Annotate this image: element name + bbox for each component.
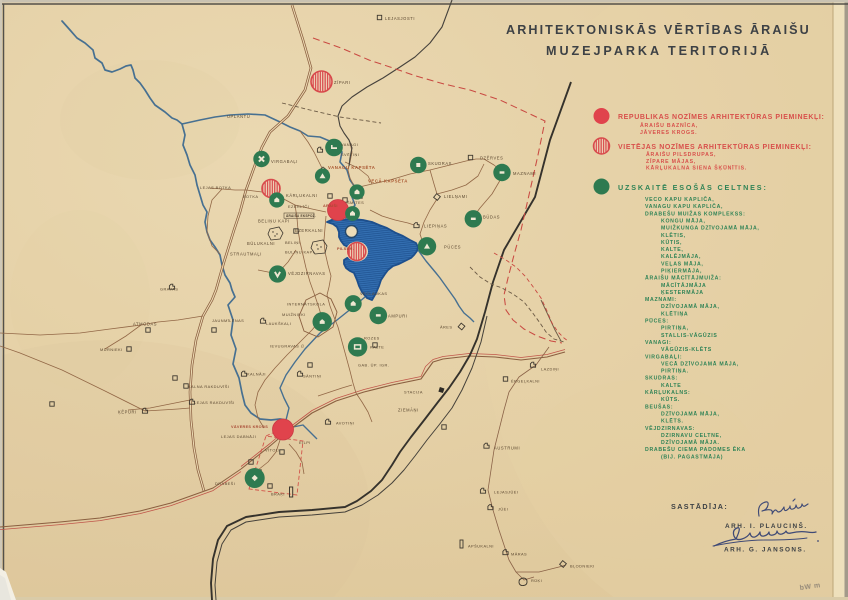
- svg-text:SASTĀDĪJA:: SASTĀDĪJA:: [671, 502, 728, 511]
- svg-text:BEUŠAS:: BEUŠAS:: [645, 402, 673, 410]
- svg-text:MĀCĪTĀJMĀJA: MĀCĪTĀJMĀJA: [661, 282, 706, 289]
- svg-text:VĒJDZIRNAVAS: VĒJDZIRNAVAS: [288, 271, 326, 276]
- svg-text:KĀRĻUKALNI: KĀRĻUKALNI: [286, 193, 317, 198]
- svg-text:BRAĶI: BRAĶI: [271, 492, 285, 497]
- svg-text:KALTE: KALTE: [661, 383, 681, 389]
- svg-text:ĀRAIŠU EKSPOZ.: ĀRAIŠU EKSPOZ.: [286, 213, 316, 218]
- svg-text:PIĶIERMĀJA,: PIĶIERMĀJA,: [661, 268, 702, 275]
- svg-text:ŠMITES: ŠMITES: [347, 200, 364, 205]
- svg-text:DZĪVOJAMĀ MĀJA,: DZĪVOJAMĀ MĀJA,: [661, 303, 720, 310]
- svg-text:KĀRĻUKALNA SIENA ŠĶŪNĪTIS.: KĀRĻUKALNA SIENA ŠĶŪNĪTIS.: [646, 164, 747, 172]
- svg-text:KALNĀJI: KALNĀJI: [247, 372, 266, 377]
- svg-text:ĀRAIŠU MĀCĪTĀJMUIŽA:: ĀRAIŠU MĀCĪTĀJMUIŽA:: [645, 274, 722, 282]
- svg-text:KALNA RAKDUVĪŠI: KALNA RAKDUVĪŠI: [188, 384, 229, 389]
- svg-text:VIETĒJAS NOZĪMES ARHITEKTŪRAS: VIETĒJAS NOZĪMES ARHITEKTŪRAS PIEMINEKĻI…: [618, 143, 812, 151]
- svg-text:MUIŽNIEKI: MUIŽNIEKI: [282, 312, 306, 317]
- svg-text:DZĒRVES: DZĒRVES: [480, 156, 503, 161]
- svg-text:KLĒTS.: KLĒTS.: [661, 418, 684, 425]
- svg-text:PŪCES:: PŪCES:: [645, 318, 669, 325]
- svg-text:UZSKAITĒ ESOŠĀS CELTNES:: UZSKAITĒ ESOŠĀS CELTNES:: [618, 183, 768, 192]
- svg-text:EZERKALNI: EZERKALNI: [295, 228, 323, 233]
- svg-text:VĀGŪZIS-KLĒTS: VĀGŪZIS-KLĒTS: [661, 346, 712, 353]
- svg-text:DRABEŠU CIEMA PADOMES ĒKA: DRABEŠU CIEMA PADOMES ĒKA: [645, 445, 746, 453]
- svg-text:EZERLĪČI: EZERLĪČI: [288, 204, 309, 209]
- svg-text:AUSTRUMI: AUSTRUMI: [494, 446, 520, 451]
- svg-text:KŪTIS,: KŪTIS,: [661, 239, 682, 246]
- svg-text:ARAIŠI: ARAIŠI: [323, 203, 338, 208]
- svg-text:BŪLUKALNI: BŪLUKALNI: [247, 241, 275, 246]
- svg-text:LEJAS RAKDUVĪŠI: LEJAS RAKDUVĪŠI: [194, 400, 235, 405]
- svg-text:GAB. ŪP. IGR.: GAB. ŪP. IGR.: [358, 363, 389, 368]
- svg-text:VĪTOLI: VĪTOLI: [265, 448, 280, 453]
- svg-text:ĀRES: ĀRES: [440, 325, 452, 330]
- svg-text:KALĒJMĀJA,: KALĒJMĀJA,: [661, 253, 701, 260]
- svg-text:ĶĒPURI: ĶĒPURI: [118, 410, 137, 415]
- svg-text:ZĪPARI: ZĪPARI: [334, 80, 351, 85]
- svg-text:ZĪPARE MĀJAS,: ZĪPARE MĀJAS,: [646, 158, 696, 165]
- svg-text:VEĻAS MĀJA,: VEĻAS MĀJA,: [661, 260, 704, 267]
- svg-text:SKUDRAS:: SKUDRAS:: [645, 376, 678, 382]
- svg-text:LEJASJŪĖI: LEJASJŪĖI: [494, 490, 518, 495]
- svg-text:BELIŅI: BELIŅI: [285, 240, 300, 245]
- svg-text:STRAUTMAĻI: STRAUTMAĻI: [230, 252, 262, 257]
- svg-text:GRAVAS: GRAVAS: [160, 287, 178, 292]
- svg-text:REPUBLIKAS NOZĪMES ARHITEKTŪRA: REPUBLIKAS NOZĪMES ARHITEKTŪRAS PIEMINEK…: [618, 113, 824, 121]
- svg-text:AVOTIŅI: AVOTIŅI: [336, 421, 354, 426]
- svg-text:ARH. I. PLAUCIŅŠ.: ARH. I. PLAUCIŅŠ.: [725, 521, 808, 530]
- svg-text:PIRTIŅA,: PIRTIŅA,: [661, 326, 689, 332]
- svg-text:STALLIS-VĀGŪZIS: STALLIS-VĀGŪZIS: [661, 332, 718, 339]
- svg-text:VANAGU KAPU KAPLIČA,: VANAGU KAPU KAPLIČA,: [645, 203, 723, 210]
- svg-text:APŠUKALNI: APŠUKALNI: [468, 544, 494, 549]
- svg-text:VANAGI: VANAGI: [341, 142, 358, 147]
- svg-text:BĻODNIEKI: BĻODNIEKI: [570, 564, 595, 569]
- svg-text:DZĪVOJAMĀ MĀJA,: DZĪVOJAMĀ MĀJA,: [661, 411, 720, 418]
- svg-text:LEJASJOSTI: LEJASJOSTI: [385, 16, 415, 21]
- svg-text:LEJAS BOTKA: LEJAS BOTKA: [200, 185, 231, 190]
- svg-text:PILSDR.: PILSDR.: [337, 247, 354, 251]
- svg-text:DZIRNAVU CELTNE,: DZIRNAVU CELTNE,: [661, 433, 722, 439]
- svg-text:(BIJ. PAGASTMĀJA): (BIJ. PAGASTMĀJA): [661, 453, 723, 460]
- svg-text:AMPURI: AMPURI: [388, 314, 408, 319]
- svg-text:MĀRAS: MĀRAS: [511, 552, 527, 557]
- svg-text:VECĀ DZĪVOJAMĀ MĀJA,: VECĀ DZĪVOJAMĀ MĀJA,: [661, 360, 739, 367]
- svg-text:KLĒTIŅA: KLĒTIŅA: [661, 310, 688, 317]
- svg-text:VĀVERES KROGS: VĀVERES KROGS: [231, 425, 268, 429]
- svg-text:EILPI: EILPI: [299, 440, 311, 445]
- svg-text:MUIŽKUNGA DZĪVOJAMĀ MĀJA,: MUIŽKUNGA DZĪVOJAMĀ MĀJA,: [661, 224, 760, 232]
- svg-text:ATMODAS: ATMODAS: [133, 322, 157, 327]
- svg-text:ROZES: ROZES: [364, 336, 380, 341]
- svg-text:JAUNMĪLĒNAS: JAUNMĪLĒNAS: [212, 318, 244, 323]
- svg-text:JĀVERES KROGS.: JĀVERES KROGS.: [640, 129, 697, 136]
- svg-text:VANAGI:: VANAGI:: [645, 340, 671, 346]
- svg-text:SVĒTIŅI: SVĒTIŅI: [341, 152, 359, 157]
- svg-text:MŪRNIEKI: MŪRNIEKI: [100, 347, 123, 352]
- svg-text:BELIŅU KAPI: BELIŅU KAPI: [258, 219, 290, 224]
- svg-text:VĒJDZIRNAVAS:: VĒJDZIRNAVAS:: [645, 425, 695, 432]
- svg-text:PIRTIŅA.: PIRTIŅA.: [661, 369, 689, 375]
- svg-text:UPLANTU: UPLANTU: [227, 114, 250, 119]
- svg-text:LIELŅAMI: LIELŅAMI: [444, 194, 467, 199]
- svg-text:DRABEŠI: DRABEŠI: [215, 481, 235, 486]
- svg-text:PŪCES: PŪCES: [444, 245, 461, 250]
- svg-text:STACIJA: STACIJA: [404, 390, 423, 395]
- svg-text:KALTE: KALTE: [370, 345, 384, 350]
- svg-text:ARH. G. JANSONS.: ARH. G. JANSONS.: [724, 547, 807, 554]
- svg-text:ZIEMĀŅI: ZIEMĀŅI: [398, 408, 419, 413]
- svg-text:KŪTS.: KŪTS.: [661, 396, 680, 403]
- svg-text:MAZNAMI:: MAZNAMI:: [645, 297, 677, 303]
- svg-text:SĀNTIŅI: SĀNTIŅI: [303, 374, 322, 379]
- svg-text:KĀRĻUKALNS:: KĀRĻUKALNS:: [645, 389, 690, 396]
- svg-text:ĀRAIŠU BAZNĪCA,: ĀRAIŠU BAZNĪCA,: [640, 121, 698, 129]
- svg-text:LEJAS DABNĀJI: LEJAS DABNĀJI: [221, 434, 256, 439]
- svg-text:VECĀ KAPSĒTA: VECĀ KAPSĒTA: [368, 179, 408, 184]
- svg-text:LIEPIŅAS: LIEPIŅAS: [424, 224, 447, 229]
- svg-text:DRABEŠU MUIŽAS KOMPLEKSS:: DRABEŠU MUIŽAS KOMPLEKSS:: [645, 209, 746, 217]
- svg-text:MAZNAMI: MAZNAMI: [513, 171, 536, 176]
- svg-text:LAZDIŅI: LAZDIŅI: [541, 367, 559, 372]
- svg-text:SKUDRAS: SKUDRAS: [428, 161, 452, 166]
- svg-text:INTERNĀTSKOLA: INTERNĀTSKOLA: [287, 302, 325, 307]
- svg-text:RŪĶI: RŪĶI: [531, 578, 542, 583]
- svg-text:DZĪVOJAMĀ MĀJA.: DZĪVOJAMĀ MĀJA.: [661, 439, 720, 446]
- svg-text:ĒRGEĻKALNI: ĒRGEĻKALNI: [511, 379, 540, 384]
- svg-text:BOTKA: BOTKA: [243, 194, 258, 199]
- svg-text:BULIŅU KAPI: BULIŅU KAPI: [285, 250, 314, 255]
- svg-text:ARHITEKTONISKĀS VĒRTĪBAS ĀRAIŠ: ARHITEKTONISKĀS VĒRTĪBAS ĀRAIŠU: [506, 22, 811, 37]
- svg-text:LAUKŠKAĻI: LAUKŠKAĻI: [266, 321, 291, 326]
- svg-text:JŪĖI: JŪĖI: [498, 507, 508, 512]
- svg-text:VECLAUKAS: VECLAUKAS: [360, 291, 387, 296]
- svg-text:ĶESTERMĀJA: ĶESTERMĀJA: [661, 289, 704, 296]
- svg-text:VECO KAPU KAPLIČA,: VECO KAPU KAPLIČA,: [645, 196, 714, 203]
- svg-text:KALTE,: KALTE,: [661, 247, 684, 253]
- svg-text:VIRGABAĻI: VIRGABAĻI: [271, 159, 298, 164]
- svg-text:KLĒTIS,: KLĒTIS,: [661, 232, 686, 239]
- svg-text:VANAGU KAPSĒTA: VANAGU KAPSĒTA: [328, 165, 375, 170]
- svg-text:ĀRAIŠU PILSDRUPAS,: ĀRAIŠU PILSDRUPAS,: [646, 150, 716, 158]
- svg-text:MUZEJPARKA TERITORIJĀ: MUZEJPARKA TERITORIJĀ: [546, 44, 772, 58]
- svg-text:IEVUGRAVAS ∅: IEVUGRAVAS ∅: [270, 344, 305, 349]
- svg-text:BŪDAS: BŪDAS: [483, 215, 500, 220]
- svg-text:KONGU MĀJA,: KONGU MĀJA,: [661, 218, 706, 225]
- svg-text:VIRGABAĻI:: VIRGABAĻI:: [645, 354, 682, 360]
